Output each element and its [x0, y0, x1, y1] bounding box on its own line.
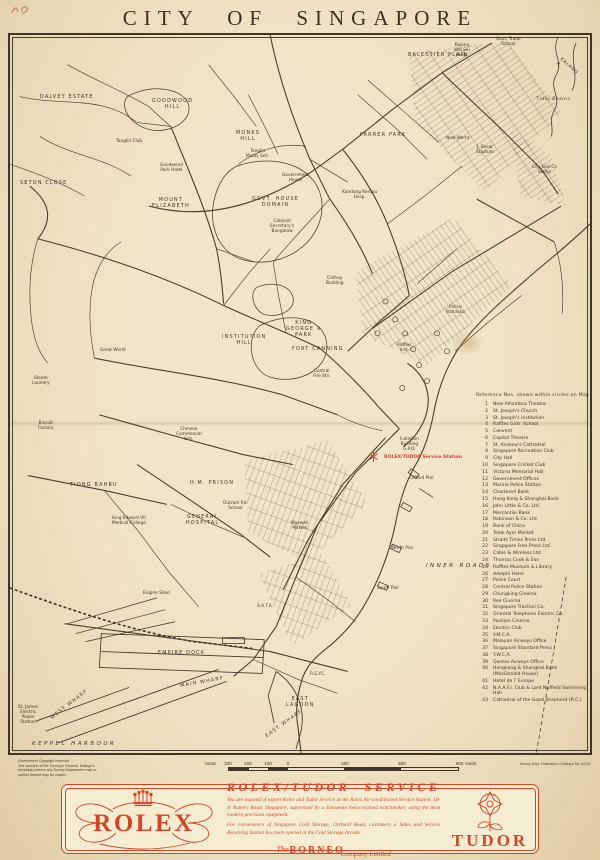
reference-number: 1 [476, 402, 488, 408]
reference-item: 27 Police Court [476, 578, 592, 584]
ad-text: ROLEX/TUDOR SERVICE You are assured of e… [220, 780, 447, 858]
reference-text: Robinson & Co. Ltd. [493, 517, 538, 523]
reference-number: 38 [476, 653, 488, 659]
reference-text: Victoria Memorial Hall [493, 470, 544, 476]
scale-segment [345, 768, 402, 770]
map-label: Govt. Trade School [496, 37, 521, 47]
reference-number: 27 [476, 578, 488, 584]
reference-text: Chungking Cinema [493, 592, 537, 598]
reference-text: Convent [493, 429, 512, 435]
reference-text: Hongkong & Shanghai Bank (MacDonald Hous… [493, 666, 557, 677]
rolex-wordmark: ROLEX [93, 810, 194, 837]
reference-number: 26 [476, 572, 488, 578]
reference-number: 34 [476, 626, 488, 632]
reference-text: Straits Times Press Ltd. [493, 538, 547, 544]
reference-number: 12 [476, 477, 488, 483]
reference-number: 4 [476, 422, 488, 428]
map-label: EAST LAGOON [286, 697, 314, 709]
reference-number: 20 [476, 531, 488, 537]
map-label: FORT CANNING [292, 347, 344, 353]
reference-item: 37 Singapore Standard Press [476, 646, 592, 652]
reference-text: City Hall [493, 456, 512, 462]
reference-item: 5 Convent [476, 429, 592, 435]
reference-item: 28 Central Police Station [476, 585, 592, 591]
reference-number: 18 [476, 517, 488, 523]
map-label: Chinese Commercial Sch. [176, 427, 202, 442]
reference-text: Thomas Cook & Son [493, 558, 539, 564]
reference-number: 37 [476, 646, 488, 652]
reference-text: Singapore Free Press Ltd. [493, 544, 551, 550]
scale-label: 100 [264, 761, 272, 766]
map-label: North Pier [392, 546, 413, 551]
reference-text: Singapore Traction Co. [493, 605, 545, 611]
scale-label: 0 [287, 761, 290, 766]
reference-item: 30 Rex Cinema [476, 599, 592, 605]
reference-item: 11 Victoria Memorial Hall [476, 470, 592, 476]
reference-text: Singapore Standard Press [493, 646, 552, 652]
reference-text: Hotel de l' Europe [493, 679, 534, 685]
map-label: J. Besar Stadium [476, 145, 494, 155]
reference-item: 32 Oriental Telephone Electric Co. [476, 612, 592, 618]
map-label: Police Barracks [446, 305, 465, 315]
copyright-note: Government Copyright reserved. The sanct… [18, 759, 97, 778]
reference-text: Marine Police Station [493, 483, 541, 489]
scale-label: 200 [244, 761, 252, 766]
reference-item: 35 Y.M.C.A. [476, 633, 592, 639]
map-label: TIONG BAHRU [70, 483, 118, 489]
reference-number: 35 [476, 633, 488, 639]
reference-number: 22 [476, 544, 488, 550]
reference-text: St. Joseph's Institution [493, 416, 544, 422]
map-label: Steam Laundry [32, 376, 50, 386]
reference-number: 11 [476, 470, 488, 476]
reference-number: 16 [476, 504, 488, 510]
scale-segment [401, 768, 458, 770]
reference-number: 40 [476, 666, 488, 677]
service-station-label: ROLEX/TUDOR Service Station [384, 455, 462, 460]
ad-heading: ROLEX/TUDOR SERVICE [227, 780, 440, 795]
map-label: SETON CLOSE [20, 181, 67, 187]
reference-panel: Reference Nos. shown within circles on M… [476, 393, 592, 705]
map-label: Raffles Inst. [397, 343, 412, 353]
reference-item: 9 City Hall [476, 456, 592, 462]
reference-number: 9 [476, 456, 488, 462]
reference-item: 19 Bank of China [476, 524, 592, 530]
reference-number: 3 [476, 416, 488, 422]
reference-number: 32 [476, 612, 488, 618]
reference-number: 13 [476, 483, 488, 489]
map-label: GOODWOOD HILL [152, 99, 193, 111]
map-label: Outram Rd. School [223, 501, 248, 511]
scale-segment [288, 768, 345, 770]
map-label: KEPPEL HARBOUR [32, 741, 116, 748]
reference-number: 19 [476, 524, 488, 530]
reference-item: 25 Raffles Museum & Library [476, 565, 592, 571]
reference-header: Reference Nos. shown within circles on M… [476, 393, 592, 398]
reference-text: Telok Ayer Market [493, 531, 534, 537]
scale-labels: Yards 300 200 100 0 300 600 900 Yards [228, 761, 459, 767]
reference-item: 29 Chungking Cinema [476, 592, 592, 598]
rolex-logo: ROLEX [68, 787, 220, 851]
reference-text: Electric Club [493, 626, 522, 632]
map-label: Tanglin Malay Sch. [246, 149, 269, 159]
reference-number: 39 [476, 660, 488, 666]
scale-label: 300 [224, 761, 232, 766]
map-label: MAIN WHARF [180, 676, 225, 689]
reference-item: 16 John Little & Co. Ltd. [476, 504, 592, 510]
reference-number: 30 [476, 599, 488, 605]
page-title: CITY OF SINGAPORE [0, 6, 600, 31]
reference-text: Cable & Wireless Ltd. [493, 551, 542, 557]
reference-number: 36 [476, 639, 488, 645]
reference-number: 2 [476, 409, 488, 415]
reference-text: Adelphi Hotel [493, 572, 524, 578]
reference-text: Qantas Airways Office [493, 660, 544, 666]
map: DALVEY ESTATE GOODWOOD HILL Tanglin Club… [8, 33, 592, 755]
reference-text: Hong Kong & Shanghai Bank [493, 497, 559, 503]
ad-paragraph-1: You are assured of expert Rolex and Tudo… [227, 797, 440, 820]
map-label: INSTITUTION HILL [222, 335, 266, 347]
scale-label: 600 [398, 761, 406, 766]
map-label: EAST WHARF [265, 709, 304, 740]
scale-label: 300 [341, 761, 349, 766]
rolex-crown-icon [134, 790, 153, 805]
map-label: WEST WHARF [50, 689, 90, 722]
map-label: New World [446, 136, 469, 141]
reference-number: 42 [476, 686, 488, 697]
reference-item: 36 Malayan Airways Office [476, 639, 592, 645]
tudor-wordmark: TUDOR [452, 831, 528, 850]
reference-number: 17 [476, 511, 488, 517]
map-label: Engine Shed [143, 591, 170, 596]
reference-text: Government Offices [493, 477, 539, 483]
company-signature: TheBORNEOCompany Limited [227, 840, 440, 858]
reference-number: 33 [476, 619, 488, 625]
map-label: Great World [100, 348, 126, 353]
reference-item: 8 Singapore Recreation Club [476, 449, 592, 455]
reference-item: 7 St. Andrew's Cathedral [476, 443, 592, 449]
map-label: GENERAL HOSPITAL [186, 515, 219, 527]
map-label: Tanglin Club [116, 139, 142, 144]
tudor-logo: TUDOR [447, 787, 533, 851]
reference-number: 7 [476, 443, 488, 449]
reference-text: St. Joseph's Church [493, 409, 537, 415]
reference-item: 3 St. Joseph's Institution [476, 416, 592, 422]
reference-number: 10 [476, 463, 488, 469]
reference-item: 26 Adelphi Hotel [476, 572, 592, 578]
reference-item: 20 Telok Ayer Market [476, 531, 592, 537]
reference-item: 23 Cable & Wireless Ltd. [476, 551, 592, 557]
scale-bar: Yards 300 200 100 0 300 600 900 Yards [228, 761, 459, 771]
map-label: Central Fire Stn. [313, 369, 331, 379]
reference-item: 39 Qantas Airways Office [476, 660, 592, 666]
reference-item: 10 Singapore Cricket Club [476, 463, 592, 469]
map-label: St. James Electric Power Station [18, 705, 38, 726]
reference-item: 12 Government Offices [476, 477, 592, 483]
reference-number: 41 [476, 679, 488, 685]
map-label: Fullerton Building G.P.O. [400, 437, 419, 452]
map-label: R.S.Y.C. [310, 672, 326, 677]
tudor-rose-icon [478, 792, 502, 831]
reference-number: 14 [476, 490, 488, 496]
reference-item: 15 Hong Kong & Shanghai Bank [476, 497, 592, 503]
map-label: MOUNT ELIZABETH [152, 198, 190, 210]
reference-text: Chartered Bank [493, 490, 529, 496]
reference-number: 24 [476, 558, 488, 564]
reference-number: 31 [476, 605, 488, 611]
reference-number: 25 [476, 565, 488, 571]
map-label: City Gas Co Works [532, 165, 557, 175]
map-label: EMPIRE DOCK [158, 651, 205, 657]
reference-item: 43 Cathedral of the Good Shepherd (R.C.) [476, 698, 592, 704]
map-label: KING GEORGE V PARK [286, 321, 322, 339]
reference-number: 23 [476, 551, 488, 557]
map-label: S.A.T.A. [257, 604, 273, 609]
reference-text: St. Andrew's Cathedral [493, 443, 546, 449]
reference-item: 24 Thomas Cook & Son [476, 558, 592, 564]
reference-item: 22 Singapore Free Press Ltd. [476, 544, 592, 550]
map-label: Biscuit Factory [38, 421, 54, 431]
reference-number: 8 [476, 449, 488, 455]
reference-item: 21 Straits Times Press Ltd. [476, 538, 592, 544]
reference-number: 21 [476, 538, 488, 544]
scale-label: 900 Yards [456, 761, 477, 766]
scale-segment [249, 768, 269, 770]
reference-item: 34 Electric Club [476, 626, 592, 632]
map-label: Cathay Building [326, 276, 343, 286]
reference-item: 13 Marine Police Station [476, 483, 592, 489]
reference-text: Malayan Airways Office [493, 639, 547, 645]
company-suffix: Company Limited [341, 850, 391, 858]
reference-item: 1 New Alhambra Theatre [476, 402, 592, 408]
map-label: South Pier [377, 586, 399, 591]
map-label: KALANG R. [555, 57, 583, 84]
ad-paragraph-2: For convenience of Singapore Cold Storag… [227, 822, 440, 837]
map-label: Colonial Secretary's Bungalow [270, 219, 294, 234]
reference-item: 6 Capitol Theatre [476, 436, 592, 442]
survey-credit: Survey Dept. Federation of Malaya No. 54… [520, 762, 590, 766]
reference-number: 5 [476, 429, 488, 435]
reference-text: Y.W.C.A. [493, 653, 511, 659]
scale-segment [229, 768, 249, 770]
company-name: BORNEO [290, 845, 345, 856]
reference-list: 1 New Alhambra Theatre 2 St. Joseph's Ch… [476, 402, 592, 704]
reference-item: 2 St. Joseph's Church [476, 409, 592, 415]
reference-text: John Little & Co. Ltd. [493, 504, 540, 510]
reference-text: Cathedral of the Good Shepherd (R.C.) [493, 698, 582, 704]
scale-segment [269, 768, 289, 770]
reference-text: Police Court [493, 578, 520, 584]
reference-text: Capitol Theatre [493, 436, 528, 442]
map-label: FARRER PARK [360, 133, 406, 139]
reference-item: 33 Pavilion Cinema [476, 619, 592, 625]
reference-item: 18 Robinson & Co. Ltd. [476, 517, 592, 523]
reference-item: 14 Chartered Bank [476, 490, 592, 496]
scale-bar-graphic [228, 767, 459, 771]
map-label: Clifford Pier [409, 476, 434, 481]
scale-label: Yards [204, 761, 216, 766]
red-pencil-mark [10, 4, 32, 16]
reference-text: Central Police Station [493, 585, 542, 591]
map-label: GOVT. HOUSE DOMAIN [252, 197, 299, 209]
reference-item: 41 Hotel de l' Europe [476, 679, 592, 685]
reference-item: 4 Raffles Girls' School [476, 422, 592, 428]
reference-text: N.A.A.F.I. Club & Lord Nuffield Swimming… [493, 686, 586, 697]
map-label: Goodwood Park Hotel [160, 163, 183, 173]
reference-text: Raffles Girls' School [493, 422, 538, 428]
map-label: King Edward VII Medical College [112, 516, 146, 526]
reference-text: Oriental Telephone Electric Co. [493, 612, 564, 618]
reference-item: 38 Y.W.C.A. [476, 653, 592, 659]
reference-text: Rex Cinema [493, 599, 520, 605]
reference-number: 6 [476, 436, 488, 442]
reference-text: Mercantile Bank [493, 511, 530, 517]
company-the: The [277, 845, 289, 854]
map-label: MONKS HILL [236, 131, 260, 143]
reference-text: Y.M.C.A. [493, 633, 511, 639]
reference-item: 42 N.A.A.F.I. Club & Lord Nuffield Swimm… [476, 686, 592, 697]
map-label: Maxwell Market [291, 521, 308, 531]
reference-text: Raffles Museum & Library [493, 565, 552, 571]
reference-item: 31 Singapore Traction Co. [476, 605, 592, 611]
map-label: Tidal Basins [536, 97, 571, 103]
rolex-tudor-ad: ROLEX ROLEX/TUDOR SERVICE You are assure… [61, 784, 539, 854]
map-sheet: { "colors": { "accent": "#d64427", "ink"… [0, 0, 600, 860]
reference-text: Bank of China [493, 524, 525, 530]
map-label: H.M. PRISON [190, 481, 234, 487]
reference-text: Singapore Recreation Club [493, 449, 554, 455]
map-label: Kandang Kerbau Hosp. [342, 190, 377, 200]
reference-number: 29 [476, 592, 488, 598]
reference-text: New Alhambra Theatre [493, 402, 546, 408]
reference-item: 40 Hongkong & Shanghai Bank (MacDonald H… [476, 666, 592, 677]
reference-number: 43 [476, 698, 488, 704]
reference-number: 15 [476, 497, 488, 503]
map-label: Government House [282, 173, 309, 183]
map-label: DALVEY ESTATE [40, 95, 94, 101]
reference-item: 17 Mercantile Bank [476, 511, 592, 517]
map-label: Kwong Wai Siu Hosp. [454, 43, 470, 58]
reference-number: 28 [476, 585, 488, 591]
reference-text: Singapore Cricket Club [493, 463, 545, 469]
reference-text: Pavilion Cinema [493, 619, 530, 625]
